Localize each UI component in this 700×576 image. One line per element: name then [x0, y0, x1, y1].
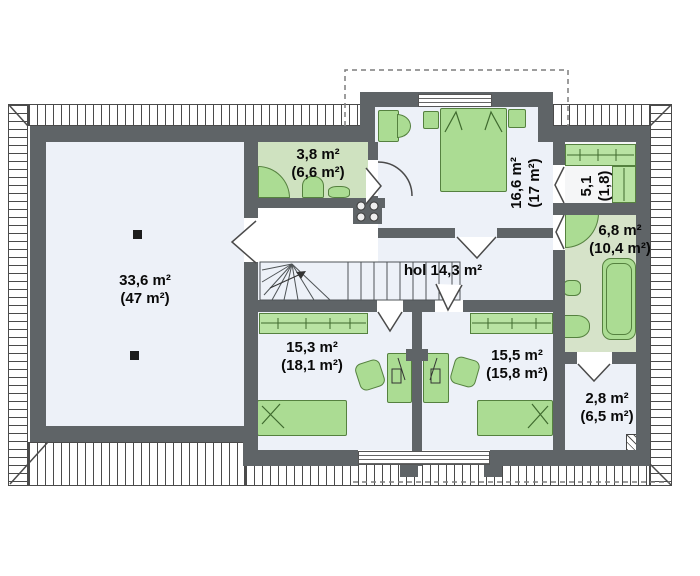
bedroom-left-area-gross: (18,1 m²) — [252, 357, 372, 375]
bottom-window — [358, 451, 490, 465]
wall-bottom — [490, 450, 650, 466]
bedroom-top-area-gross: (17 m²) — [526, 143, 544, 223]
nightstand-icon — [423, 111, 439, 129]
wall-right-spine — [553, 126, 565, 165]
window-pier — [400, 464, 418, 477]
wall-bath-storage — [612, 352, 650, 364]
floor-plan: 33,6 m² (47 m²) 3,8 m² (6,6 m²) 16,6 m² … — [0, 0, 700, 576]
nightstand-icon — [508, 109, 526, 128]
wardrobe-strip-icon — [470, 313, 553, 334]
roof-band-bottom-right — [245, 464, 650, 486]
wardrobe-strip-icon — [259, 313, 368, 334]
bathroom-right-area-gross: (10,4 m²) — [578, 240, 662, 258]
bedroom-right-area: 15,5 m² — [457, 347, 577, 365]
wardrobe-area-gross: (1,8) — [596, 161, 614, 211]
post-mark-icon — [130, 351, 139, 360]
attic-label: 33,6 m² (47 m²) — [85, 272, 205, 308]
bathroom-top-area-gross: (6,6 m²) — [268, 164, 368, 182]
toilet-icon — [561, 315, 590, 338]
wall-spine — [244, 126, 258, 218]
attic-area: 33,6 m² — [85, 272, 205, 290]
bathtub-inner-icon — [606, 263, 632, 335]
sink-icon — [563, 280, 581, 296]
wall-bedrooms-top — [463, 300, 553, 312]
bedroom-right-label: 15,5 m² (15,8 m²) — [457, 347, 577, 383]
desk-icon — [378, 110, 399, 142]
bathroom-right-door-icon — [556, 215, 564, 249]
storage-area-gross: (6,5 m²) — [547, 408, 667, 426]
window-pier — [484, 464, 502, 477]
storage-label: 2,8 m² (6,5 m²) — [547, 390, 667, 426]
bathroom-right-area: 6,8 m² — [578, 222, 662, 240]
hall-label: hol 14,3 m² — [383, 262, 503, 280]
roof-band-right — [650, 104, 672, 486]
dormer-wall — [538, 104, 553, 128]
bedroom-right-area-gross: (15,8 m²) — [457, 365, 577, 383]
dormer-wall — [360, 104, 375, 128]
wardrobe-door-icon — [555, 167, 564, 203]
roof-band-left — [8, 104, 28, 486]
double-bed-icon — [440, 108, 507, 192]
wall-bedrooms-top — [403, 300, 435, 312]
wall-left — [30, 126, 46, 442]
wall-bottom-left — [30, 426, 245, 442]
wall-top — [30, 126, 375, 142]
roof-band-top-left — [28, 104, 361, 126]
bedroom-left-area: 15,3 m² — [252, 339, 372, 357]
bed-icon — [477, 400, 553, 436]
bathroom-top-area: 3,8 m² — [268, 146, 368, 164]
post-mark-icon — [133, 230, 142, 239]
attic-area-gross: (47 m²) — [85, 290, 205, 308]
roof-band-bottom-left — [28, 442, 245, 486]
wall-bedroom-top-bottom — [497, 228, 553, 238]
bedroom-top-label: 16,6 m² (17 m²) — [508, 143, 548, 223]
bathroom-right-label: 6,8 m² (10,4 m²) — [578, 222, 662, 258]
bedroom-left-label: 15,3 m² (18,1 m²) — [252, 339, 372, 375]
wall-desk-pier — [406, 349, 428, 361]
wall-bedroom-top-bottom — [378, 228, 455, 238]
bathroom-top-label: 3,8 m² (6,6 m²) — [268, 146, 368, 182]
sink-icon — [328, 186, 350, 198]
wall-bedrooms-top — [244, 300, 377, 312]
wall-bottom — [245, 450, 358, 466]
dormer-window — [418, 94, 492, 107]
cooktop-block — [353, 198, 382, 224]
wardrobe-area: 5,1 — [578, 161, 596, 211]
storage-area: 2,8 m² — [547, 390, 667, 408]
wall-bedroom-divider — [412, 312, 422, 466]
bed-icon — [257, 400, 347, 436]
wall-bath-bedroom — [368, 142, 378, 160]
wardrobe-label: 5,1 (1,8) — [578, 161, 616, 211]
bedroom-top-area: 16,6 m² — [508, 143, 526, 223]
